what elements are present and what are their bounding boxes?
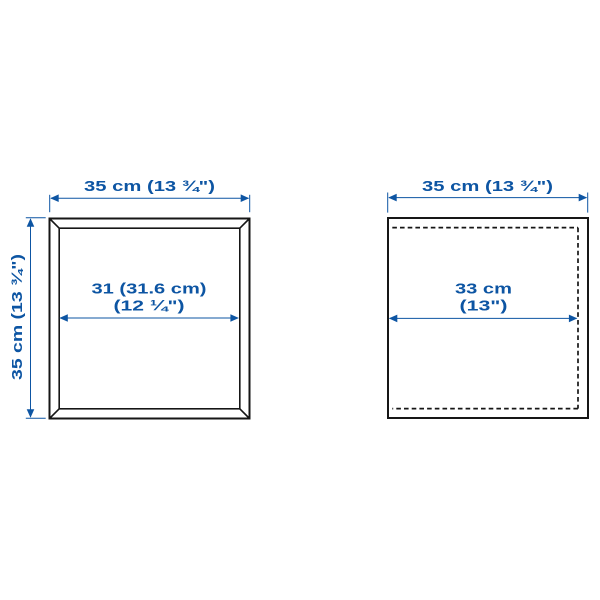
- svg-text:31 (31.6 cm): 31 (31.6 cm): [92, 280, 207, 297]
- svg-text:35 cm (13 ¾"): 35 cm (13 ¾"): [84, 178, 215, 195]
- svg-text:35 cm (13 ¾"): 35 cm (13 ¾"): [9, 254, 26, 380]
- svg-text:33 cm: 33 cm: [455, 280, 512, 297]
- svg-text:(13"): (13"): [460, 297, 508, 314]
- svg-text:(12 ¼"): (12 ¼"): [114, 297, 185, 314]
- svg-text:35 cm (13 ¾"): 35 cm (13 ¾"): [422, 178, 553, 195]
